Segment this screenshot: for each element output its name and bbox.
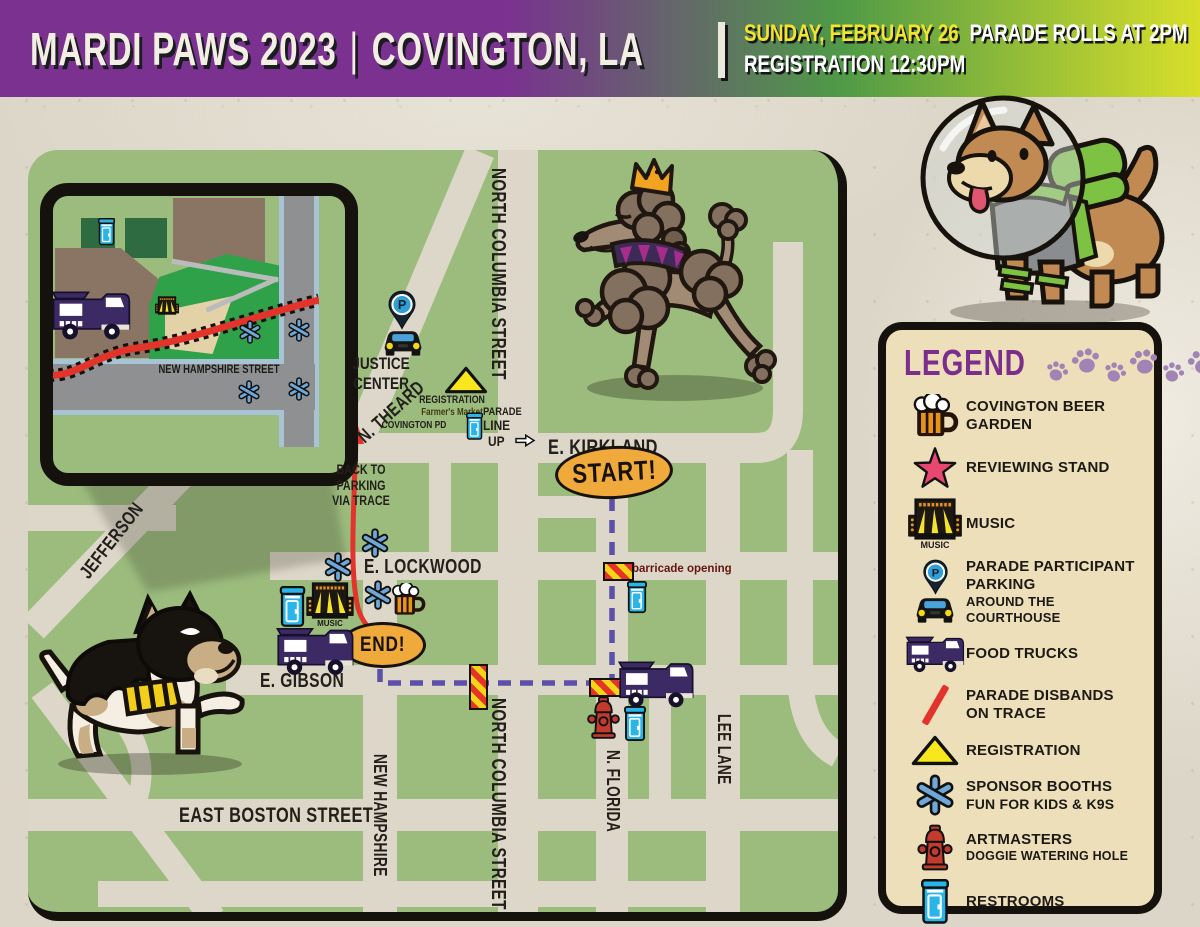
food-truck-icon	[274, 624, 356, 678]
barricade-opening-florida	[603, 562, 634, 581]
food-truck-icon	[49, 288, 133, 342]
inset-street-label: NEW HAMPSHIRE STREET	[153, 364, 284, 376]
street-label-e-lockwood: E. LOCKWOOD	[364, 556, 482, 579]
header-divider-bar	[718, 22, 725, 78]
page-title: MARDI PAWS 2023|COVINGTON, LA	[30, 22, 644, 76]
food-truck-icon	[904, 633, 966, 675]
paw-prints-icon	[1042, 342, 1200, 383]
poodle-dog-illustration	[550, 158, 802, 406]
fire-hydrant-icon	[587, 695, 620, 740]
back-to-parking-label: BACK TO PARKING VIA TRACE	[323, 462, 400, 509]
registration-triangle-icon	[443, 366, 489, 394]
beer-mug-icon	[390, 583, 426, 616]
fire-hydrant-icon	[917, 824, 953, 871]
sponsor-asterisk-icon	[363, 580, 393, 610]
street-label-north-columbia-bottom: NORTH COLUMBIA STREET	[486, 698, 509, 910]
title-city: COVINGTON, LA	[372, 23, 644, 75]
covington-pd-label: COVINGTON PD	[377, 419, 451, 431]
restroom-icon	[98, 218, 115, 246]
barricade-opening-label: barricade opening	[632, 563, 732, 575]
food-truck-icon	[616, 658, 696, 710]
red-line-icon	[921, 684, 949, 726]
legend-item-sponsor-booths: SPONSOR BOOTHSFUN FOR KIDS & K9S	[904, 774, 1138, 816]
sponsor-asterisk-icon	[360, 528, 390, 558]
car-icon	[912, 593, 958, 625]
restroom-icon	[624, 706, 646, 742]
street-label-north-columbia-top: NORTH COLUMBIA STREET	[486, 168, 509, 380]
sponsor-asterisk-icon	[287, 318, 311, 342]
restroom-icon	[921, 879, 949, 925]
legend-panel: LEGEND COVINGTON BEER GARDEN REVIEWING S…	[878, 322, 1162, 914]
inset-map: NEW HAMPSHIRE STREET	[40, 183, 358, 486]
event-date: SUNDAY, FEBRUARY 26	[744, 20, 959, 47]
parade-line-up-label: PARADE LINE UP	[483, 406, 538, 451]
legend-item-artmasters: ARTMASTERSDOGGIE WATERING HOLE	[904, 824, 1138, 871]
sponsor-asterisk-icon	[323, 552, 353, 582]
legend-item-parking: PARADE PARTICIPANT PARKINGAROUND THE COU…	[904, 558, 1138, 625]
car-icon	[380, 326, 426, 358]
registration-time: REGISTRATION 12:30PM	[744, 51, 965, 78]
bat-costume-dog-illustration	[30, 588, 265, 780]
legend-title: LEGEND	[904, 342, 1026, 384]
registration-triangle-icon	[910, 735, 960, 766]
restroom-icon	[466, 412, 483, 441]
music-stage-icon	[306, 582, 354, 619]
sponsor-asterisk-icon	[237, 380, 261, 404]
music-stage-icon	[155, 296, 179, 315]
music-stage-icon	[908, 498, 962, 540]
title-event: MARDI PAWS 2023	[30, 23, 337, 75]
legend-item-disbands: PARADE DISBANDSON TRACE	[904, 683, 1138, 727]
legend-item-music: MUSIC MUSIC	[904, 498, 1138, 550]
crown-icon	[632, 160, 672, 194]
legend-item-registration: REGISTRATION	[904, 735, 1138, 766]
astronaut-corgi-illustration	[900, 86, 1190, 326]
street-label-n-florida: N. FLORIDA	[602, 750, 623, 832]
lineup-arrow-icon	[512, 433, 538, 448]
sponsor-asterisk-icon	[914, 774, 956, 816]
star-icon	[913, 446, 957, 490]
legend-item-food-trucks: FOOD TRUCKS	[904, 633, 1138, 675]
parking-pin-icon	[387, 290, 417, 330]
street-label-lee-lane: LEE LANE	[713, 714, 734, 785]
mardi-paws-flyer: { "header": { "title_event": "MARDI PAWS…	[0, 0, 1200, 927]
parade-time: PARADE ROLLS AT 2PM	[970, 20, 1188, 47]
sponsor-asterisk-icon	[287, 377, 311, 401]
registration-label: REGISTRATION	[415, 394, 489, 407]
beer-mug-icon	[911, 394, 959, 438]
title-separator: |	[349, 23, 358, 75]
restroom-icon	[627, 581, 647, 614]
street-label-east-boston: EAST BOSTON STREET	[179, 804, 373, 828]
sponsor-asterisk-icon	[238, 320, 262, 344]
parking-pin-icon	[922, 559, 949, 595]
legend-item-beer-garden: COVINGTON BEER GARDEN	[904, 394, 1138, 438]
barricade-columbia-gibson	[469, 664, 488, 710]
justice-center-label: JUSTICE CENTER	[337, 354, 425, 393]
legend-item-restrooms: RESTROOMS	[904, 879, 1138, 925]
event-schedule: SUNDAY, FEBRUARY 26PARADE ROLLS AT 2PM R…	[744, 18, 1200, 80]
parade-route-map: NEW HAMPSHIRE STREET NORTH COLUMBIA STRE…	[28, 150, 847, 921]
restroom-icon	[279, 586, 306, 628]
header-banner: MARDI PAWS 2023|COVINGTON, LA SUNDAY, FE…	[0, 0, 1200, 97]
legend-item-reviewing-stand: REVIEWING STAND	[904, 446, 1138, 490]
